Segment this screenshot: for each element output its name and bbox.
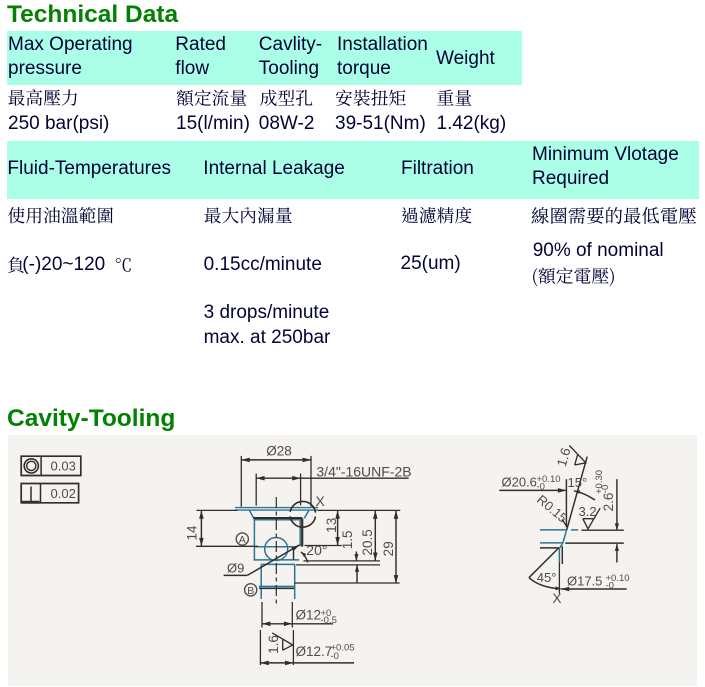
svg-text:29: 29 [381,541,396,556]
svg-text:20.5: 20.5 [360,529,375,555]
svg-text:Ø20.6: Ø20.6 [502,475,537,490]
svg-text:-0: -0 [606,581,614,592]
svg-text:Ø28: Ø28 [266,444,292,459]
svg-text:3.2: 3.2 [579,504,597,519]
svg-text:15°: 15° [568,475,588,490]
svg-text:0.02: 0.02 [51,486,76,501]
svg-text:Ø12: Ø12 [296,608,322,623]
svg-text:Ø12.7: Ø12.7 [296,644,333,659]
svg-text:20°: 20° [306,542,327,558]
svg-text:45°: 45° [537,570,557,585]
svg-text:A: A [239,534,246,546]
svg-text:14: 14 [184,525,199,541]
svg-text:13: 13 [324,518,339,533]
svg-text:X: X [316,493,326,509]
svg-text:Ø9: Ø9 [227,560,244,575]
svg-text:R0.15: R0.15 [534,492,570,526]
svg-text:1.6: 1.6 [554,446,574,468]
svg-text:2.6: 2.6 [601,493,616,512]
svg-text:1.6: 1.6 [266,635,281,654]
svg-text:-0.5: -0.5 [321,615,337,626]
svg-text:Ø17.5: Ø17.5 [567,574,602,589]
svg-text:-0: -0 [600,485,611,493]
svg-text:B: B [247,585,254,597]
svg-text:X: X [553,591,562,606]
svg-text:-0: -0 [331,651,339,662]
svg-text:0.03: 0.03 [51,459,76,474]
svg-text:3/4"-16UNF-2B: 3/4"-16UNF-2B [316,463,411,479]
svg-text:1.5: 1.5 [340,531,355,550]
